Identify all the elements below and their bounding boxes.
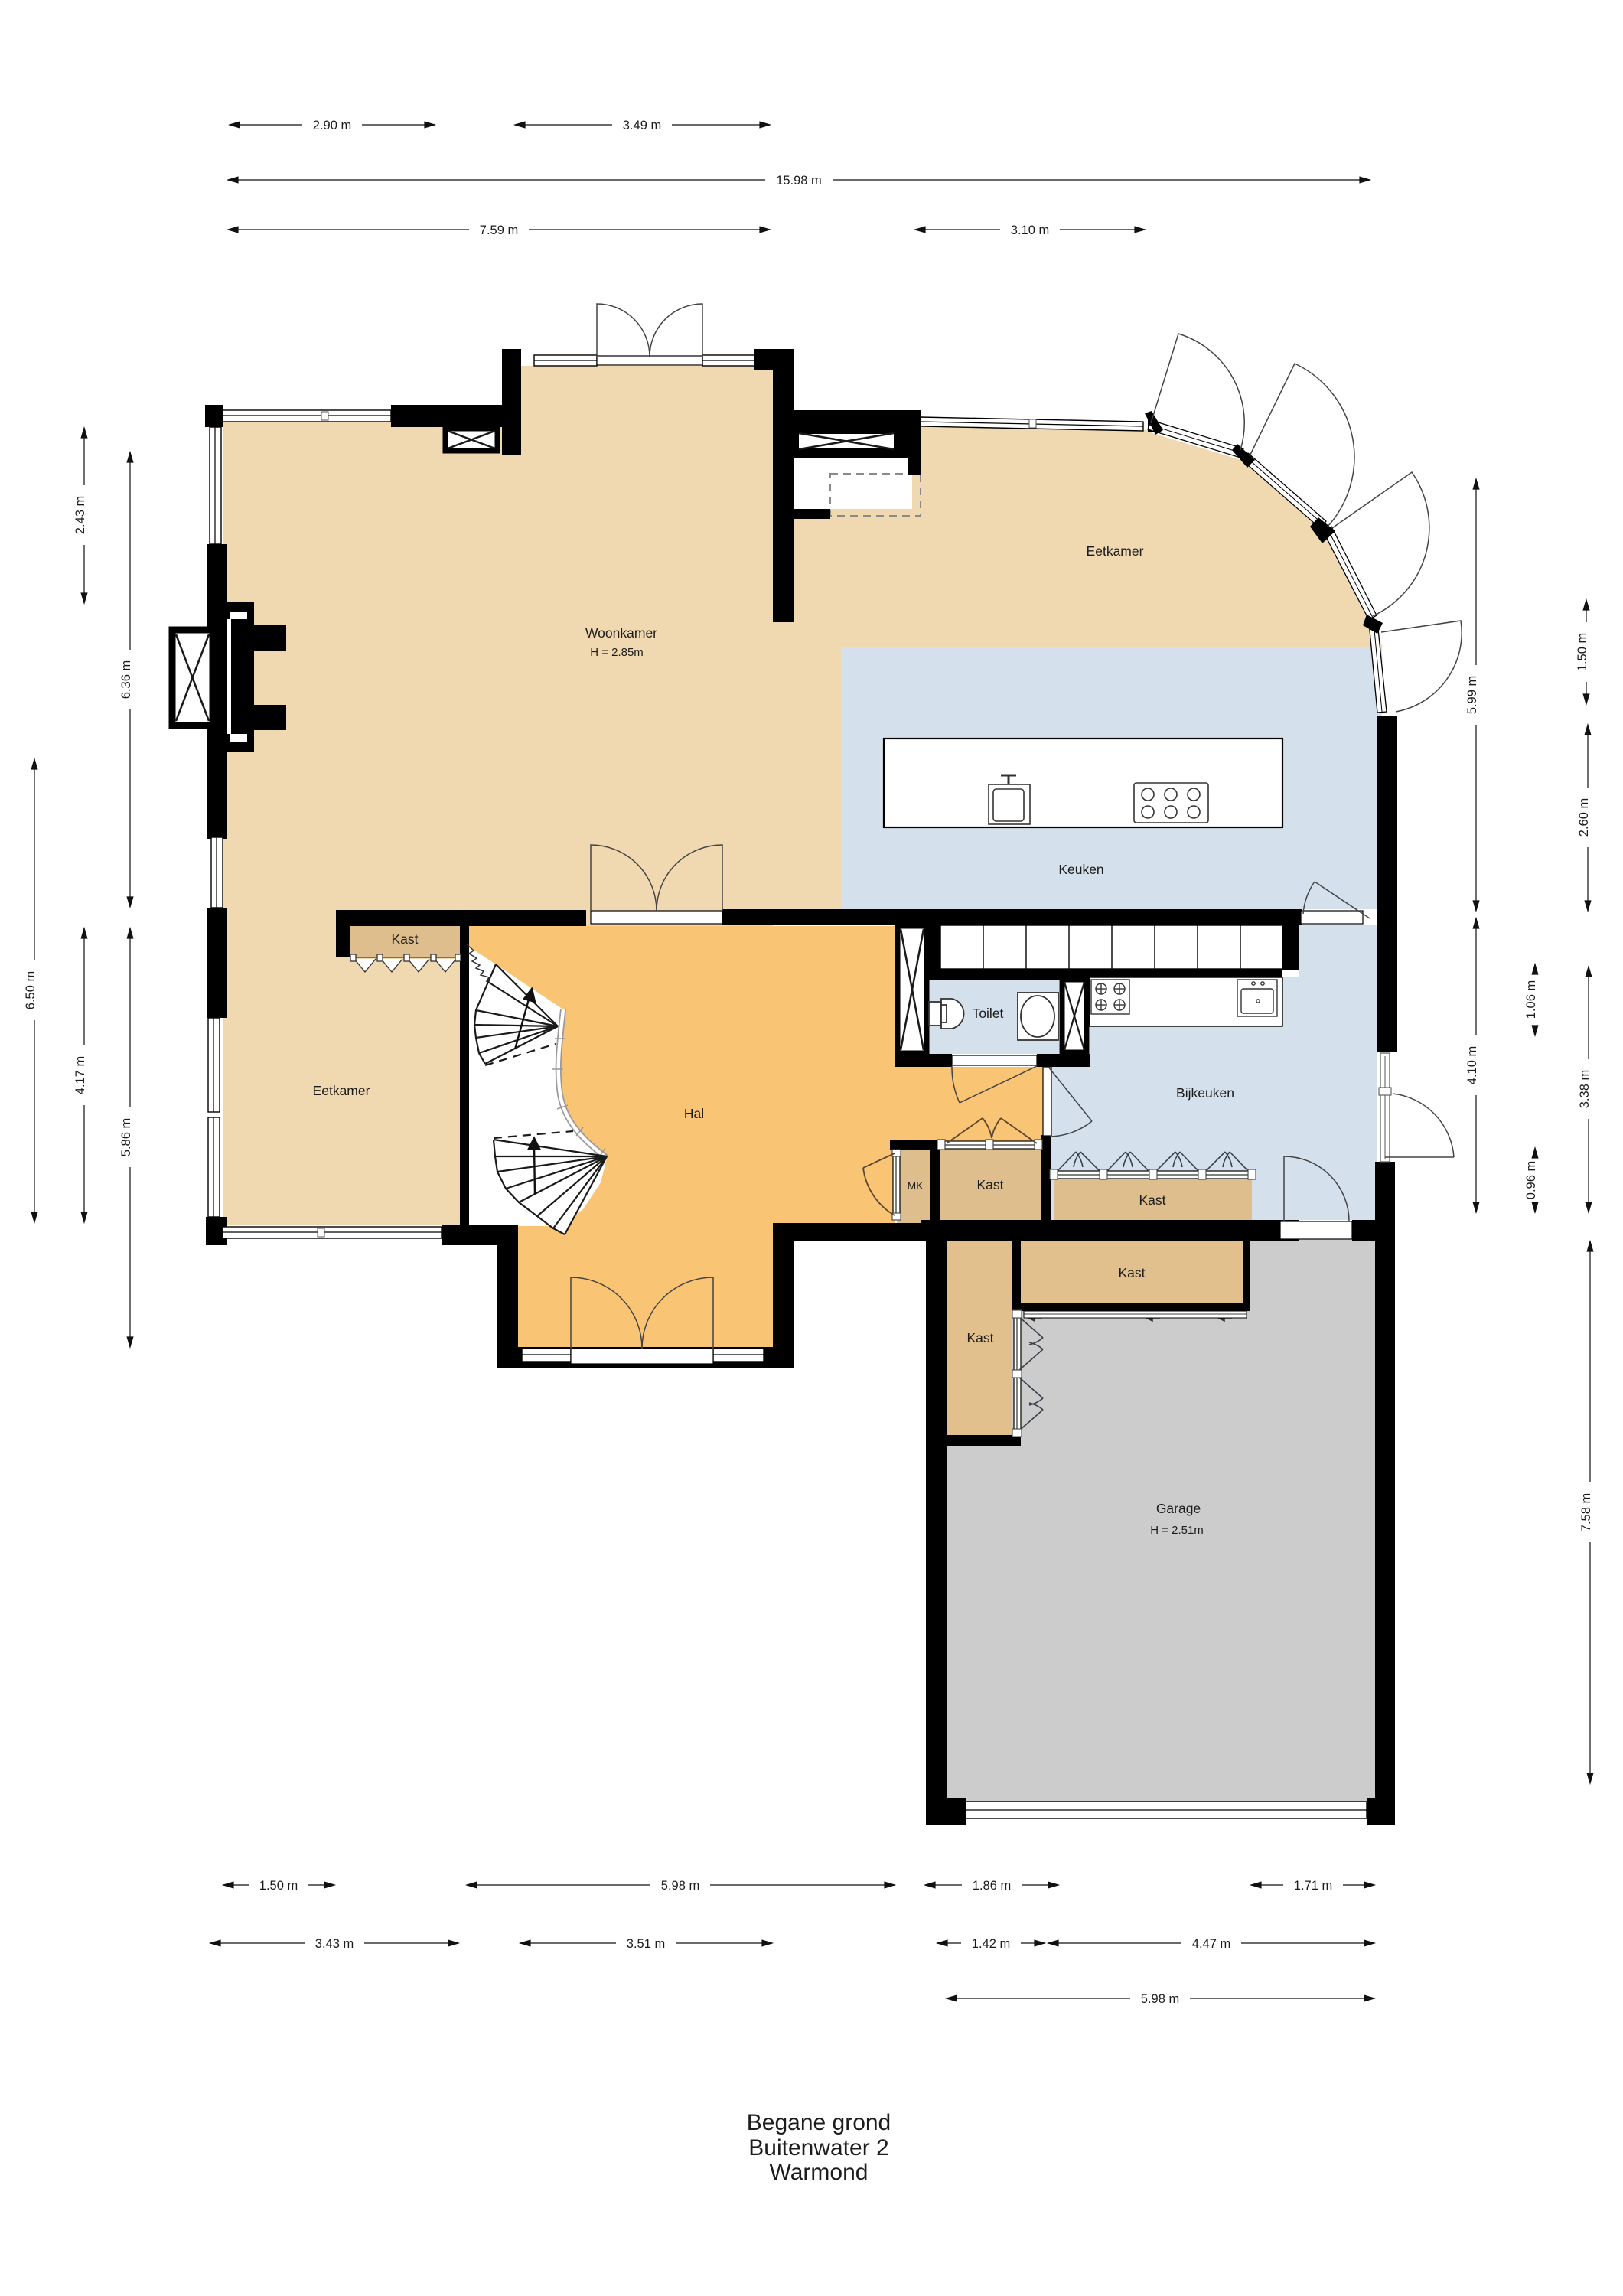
svg-text:Kast: Kast [1118,1265,1145,1280]
svg-text:Eetkamer: Eetkamer [1087,543,1144,559]
svg-text:H = 2.51m: H = 2.51m [1150,1524,1204,1537]
svg-text:3.43 m: 3.43 m [315,1937,354,1951]
svg-text:15.98 m: 15.98 m [776,174,822,188]
svg-text:5.98 m: 5.98 m [661,1879,699,1893]
svg-text:Bijkeuken: Bijkeuken [1176,1085,1234,1101]
svg-text:H = 2.85m: H = 2.85m [590,646,644,659]
svg-text:2.60 m: 2.60 m [1577,798,1591,837]
svg-text:4.47 m: 4.47 m [1192,1937,1230,1951]
svg-text:Garage: Garage [1156,1501,1201,1516]
svg-text:Keuken: Keuken [1058,862,1103,877]
svg-text:Warmond: Warmond [770,2160,869,2185]
svg-text:5.99 m: 5.99 m [1465,676,1479,714]
svg-text:1.50 m: 1.50 m [1576,633,1589,671]
svg-text:3.10 m: 3.10 m [1011,223,1049,237]
svg-text:Kast: Kast [976,1177,1003,1192]
svg-text:7.58 m: 7.58 m [1579,1493,1593,1531]
svg-text:Kast: Kast [1139,1192,1165,1208]
svg-text:3.51 m: 3.51 m [627,1937,665,1951]
svg-text:7.59 m: 7.59 m [480,223,518,237]
svg-text:6.36 m: 6.36 m [119,660,133,699]
svg-text:4.10 m: 4.10 m [1465,1046,1479,1084]
svg-text:3.38 m: 3.38 m [1578,1070,1592,1108]
svg-text:Woonkamer: Woonkamer [585,625,657,641]
svg-text:Toilet: Toilet [973,1006,1004,1021]
svg-text:0.96 m: 0.96 m [1524,1161,1538,1199]
svg-text:1.06 m: 1.06 m [1524,980,1538,1019]
svg-text:1.71 m: 1.71 m [1294,1879,1332,1893]
svg-text:Hal: Hal [684,1106,704,1121]
svg-text:1.42 m: 1.42 m [972,1937,1010,1951]
svg-text:1.50 m: 1.50 m [259,1879,298,1893]
svg-text:5.86 m: 5.86 m [119,1118,133,1156]
svg-text:Eetkamer: Eetkamer [313,1083,370,1098]
svg-text:Begane grond: Begane grond [747,2110,891,2135]
svg-text:4.17 m: 4.17 m [73,1056,87,1094]
svg-text:Buitenwater 2: Buitenwater 2 [748,2135,888,2161]
svg-text:6.50 m: 6.50 m [24,971,37,1009]
svg-text:Kast: Kast [391,931,418,947]
svg-text:1.86 m: 1.86 m [973,1879,1011,1893]
svg-text:3.49 m: 3.49 m [623,119,661,132]
svg-text:2.90 m: 2.90 m [313,119,351,132]
svg-text:2.43 m: 2.43 m [73,496,87,534]
svg-text:MK: MK [908,1179,924,1192]
svg-text:Kast: Kast [966,1330,993,1345]
svg-text:5.98 m: 5.98 m [1141,1992,1179,2006]
